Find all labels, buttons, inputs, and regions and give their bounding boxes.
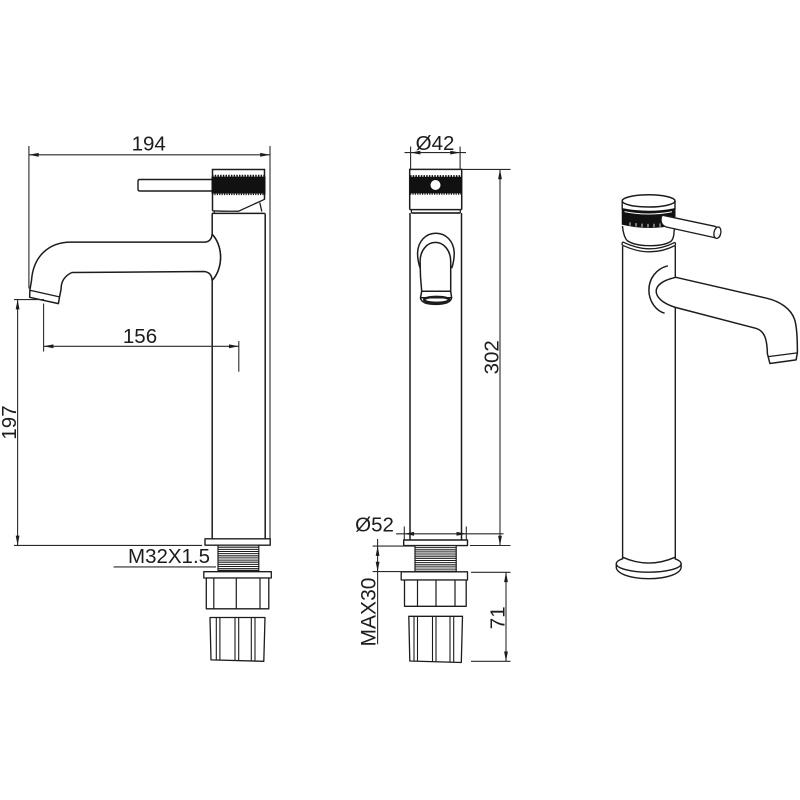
svg-text:194: 194 bbox=[132, 133, 166, 156]
svg-text:Ø52: Ø52 bbox=[355, 514, 394, 537]
svg-text:71: 71 bbox=[487, 606, 510, 629]
svg-text:MAX30: MAX30 bbox=[358, 578, 381, 647]
svg-text:197: 197 bbox=[0, 405, 21, 439]
svg-text:302: 302 bbox=[480, 340, 503, 374]
svg-text:156: 156 bbox=[123, 325, 157, 348]
svg-text:Ø42: Ø42 bbox=[416, 132, 455, 155]
svg-text:M32X1.5: M32X1.5 bbox=[128, 545, 210, 568]
